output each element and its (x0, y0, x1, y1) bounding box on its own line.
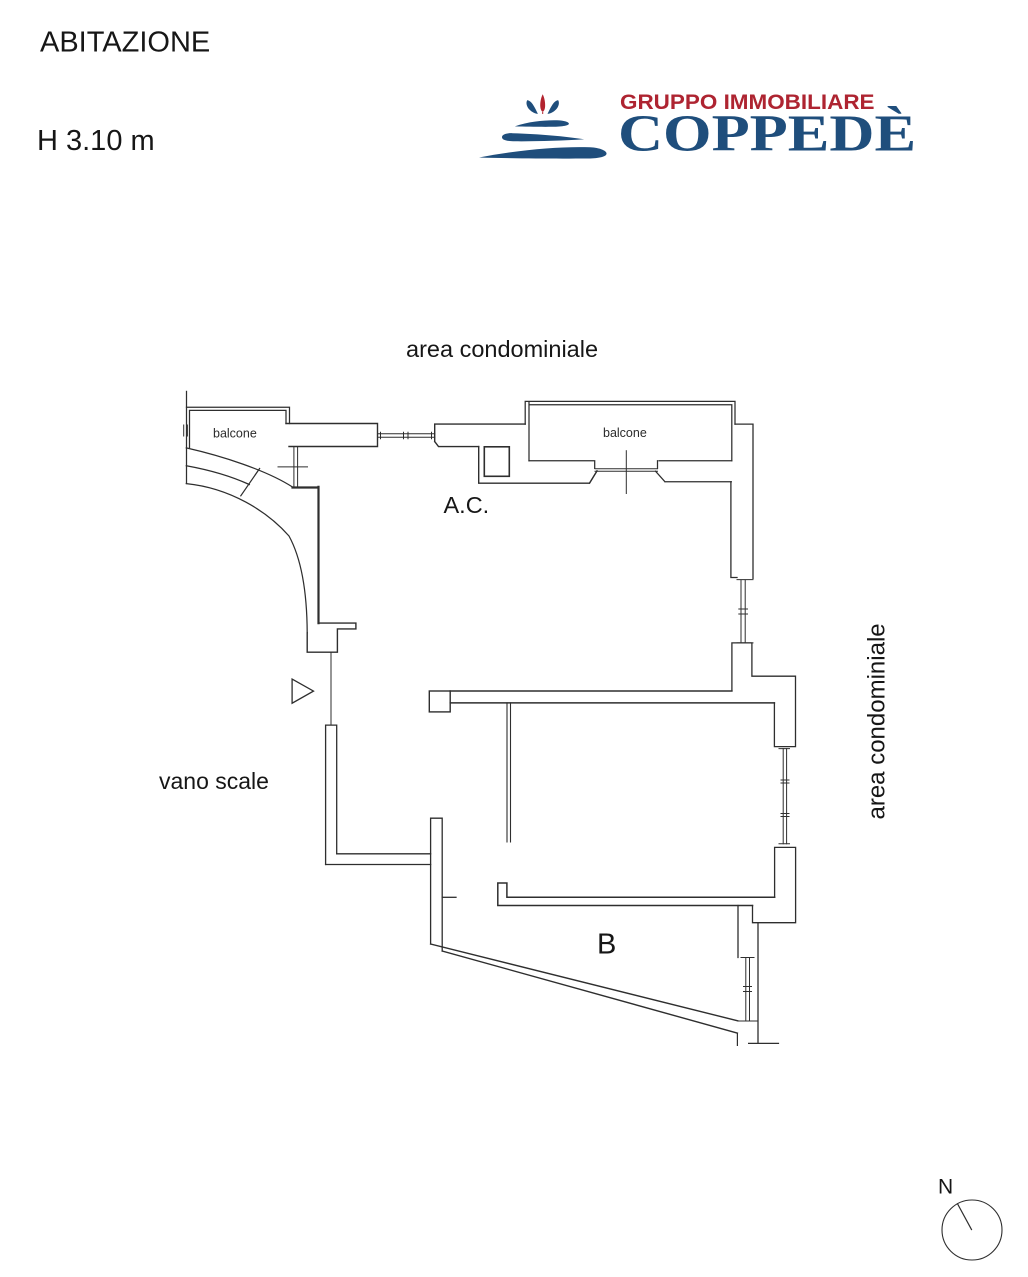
svg-text:vano scale: vano scale (159, 768, 269, 794)
svg-text:area condominiale: area condominiale (406, 336, 598, 362)
svg-text:area condominiale: area condominiale (864, 623, 891, 819)
svg-text:H 3.10 m: H 3.10 m (37, 125, 155, 157)
svg-text:B: B (597, 929, 616, 961)
svg-text:balcone: balcone (213, 427, 257, 441)
svg-text:N: N (938, 1176, 953, 1199)
svg-text:ABITAZIONE: ABITAZIONE (40, 27, 210, 59)
svg-text:A.C.: A.C. (444, 492, 490, 518)
svg-text:COPPEDÈ: COPPEDÈ (618, 105, 916, 162)
svg-text:balcone: balcone (603, 426, 647, 440)
